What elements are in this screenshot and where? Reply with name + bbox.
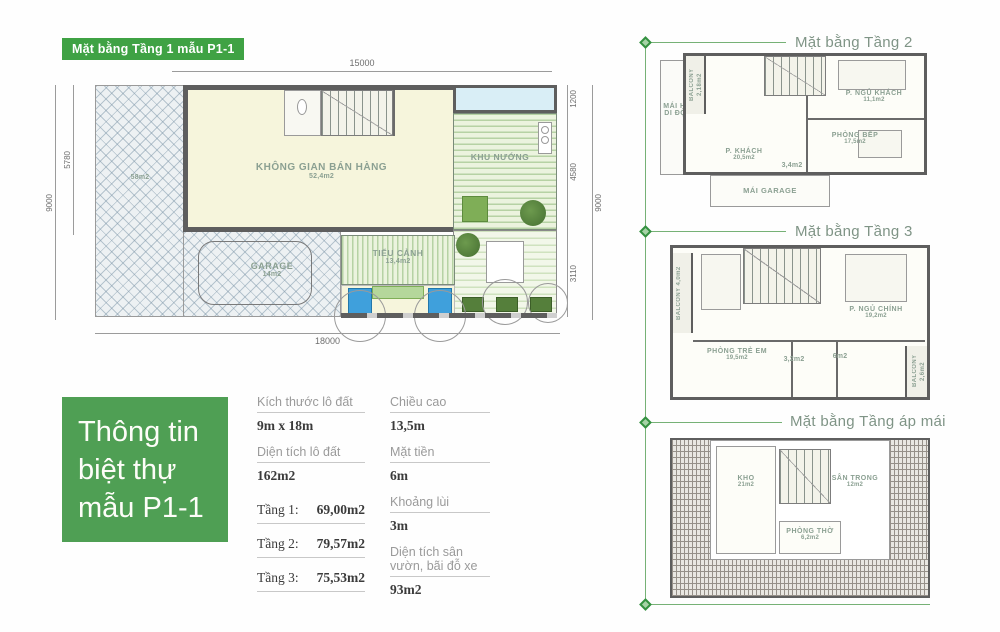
floor3-stairs <box>743 248 821 304</box>
grill-icon <box>538 122 552 154</box>
phong-tre-em-area: 19,5m2 <box>683 355 791 361</box>
spec-label: Diện tích sân vườn, bãi đỗ xe <box>390 545 490 577</box>
spec-value: 69,00m2 <box>317 502 365 518</box>
garage-label: GARAGE 14m2 <box>204 261 340 278</box>
floor3-title: Mặt bằng Tầng 3 <box>795 223 913 240</box>
phong-tre-em-label: PHÒNG TRẺ EM 19,5m2 <box>683 348 791 361</box>
dim-bottom: 18000 <box>95 333 560 346</box>
tree-canopy-icon <box>482 279 528 325</box>
yard-area-label: 58m2 <box>96 174 184 181</box>
planter-icon <box>462 196 488 222</box>
attic-kho-room: KHO 21m2 <box>716 446 776 554</box>
toilet-icon <box>297 99 307 115</box>
tree-icon <box>520 200 546 226</box>
wall-divider <box>808 118 924 120</box>
spec-value: 162m2 <box>257 468 365 484</box>
dim-right-outer: 9000 <box>592 85 603 320</box>
floorplan-page: Mặt bằng Tầng 1 mẫu P1-1 58m2 GARAGE 14m… <box>0 0 1000 632</box>
spec-label: Tầng 3: <box>257 570 299 586</box>
tieu-canh-area: 13,4m2 <box>342 258 454 265</box>
wc-area-label: 3,2m2 <box>777 356 811 363</box>
san-trong-label: SÂN TRONG 12m2 <box>821 475 889 488</box>
connector-hline <box>646 422 782 423</box>
dim-left-inner: 5780 <box>73 85 74 235</box>
spec-row: Tầng 3: 75,53m2 <box>257 563 365 592</box>
dim-top-value: 15000 <box>349 58 374 72</box>
dim-right-mid: 4580 <box>567 113 578 230</box>
spec-value: 93m2 <box>390 582 490 598</box>
bed-icon <box>838 60 906 90</box>
tree-icon <box>456 233 480 257</box>
floor1-garage: GARAGE 14m2 <box>183 230 341 317</box>
floor1-building: KHÔNG GIAN BÁN HÀNG 52,4m2 <box>183 85 460 232</box>
kho-name: KHO <box>717 475 775 482</box>
spec-value: 75,53m2 <box>317 570 365 586</box>
sales-room-label: KHÔNG GIAN BÁN HÀNG 52,4m2 <box>188 162 455 180</box>
spec-label: Kích thước lô đất <box>257 395 365 413</box>
spec-value: 9m x 18m <box>257 418 365 434</box>
bath-area-label: 6m2 <box>825 353 855 360</box>
balcony-area: 2,6m2 <box>920 362 926 381</box>
floor2-balcony: BALCONY 2,18m2 <box>686 56 706 114</box>
roof-hatch <box>672 560 928 596</box>
wall-divider <box>693 340 925 342</box>
p-ngu-chinh-area: 19,2m2 <box>821 313 931 319</box>
phong-bep-area: 17,5m2 <box>810 139 900 145</box>
dim-right-mid-value: 4580 <box>569 163 578 181</box>
spec-col1: Kích thước lô đất 9m x 18m Diện tích lô … <box>257 395 365 597</box>
floor1-garden <box>453 230 557 317</box>
diamond-marker-icon <box>639 36 652 49</box>
attic-phong-tho-room: PHÒNG THỜ 6,2m2 <box>779 521 841 554</box>
kho-label: KHO 21m2 <box>717 475 775 488</box>
kho-area: 21m2 <box>717 482 775 488</box>
dim-left-outer-value: 9000 <box>45 194 54 212</box>
floor2-stairs <box>764 56 826 96</box>
outdoor-table-icon <box>486 241 524 283</box>
attic-inner: KHO 21m2 SÂN TRONG 12m2 PHÒNG THỜ 6,2m2 <box>710 440 890 560</box>
p-khach-area: 20,5m2 <box>694 155 794 161</box>
phong-tho-area: 6,2m2 <box>780 535 840 541</box>
dim-right-low-value: 3110 <box>569 265 578 282</box>
floor1-yard-left: 58m2 <box>95 85 185 317</box>
spec-label: Khoảng lùi <box>390 495 490 513</box>
p-ngu-chinh-label: P. NGỦ CHÍNH 19,2m2 <box>821 306 931 319</box>
floor1-title-badge: Mặt bằng Tầng 1 mẫu P1-1 <box>62 38 244 60</box>
san-trong-area: 12m2 <box>821 482 889 488</box>
info-box-line2: biệt thự <box>78 451 228 489</box>
dim-right-top-value: 1200 <box>569 90 578 108</box>
phong-bep-name: PHÒNG BẾP <box>810 132 900 139</box>
floor3-plan: BALCONY 4,0m2 PHÒNG TRẺ EM 19,5m2 P. NGỦ… <box>655 240 935 405</box>
floor2-plan: MÁI HIÊN DI ĐỘNG BALCONY 2,18m2 P. KHÁ <box>655 50 935 210</box>
p-khach-label: P. KHÁCH 20,5m2 <box>694 148 794 161</box>
dim-top: 15000 <box>172 71 552 72</box>
phong-tho-label: PHÒNG THỜ 6,2m2 <box>780 528 840 541</box>
balcony-label: BALCONY 4,0m2 <box>675 257 683 329</box>
spec-label: Chiều cao <box>390 395 490 413</box>
floor1-plan: 58m2 GARAGE 14m2 KHÔNG GIAN BÁN HÀNG 52,… <box>95 85 560 320</box>
balcony-name: BALCONY <box>676 287 682 319</box>
p-ngu-khach-area: 11,1m2 <box>824 97 924 103</box>
floor3-balcony-right: BALCONY 2,6m2 <box>905 346 927 397</box>
dim-bottom-value: 18000 <box>315 336 340 346</box>
dim-left-outer: 9000 <box>55 85 56 320</box>
phong-tho-name: PHÒNG THỜ <box>780 528 840 535</box>
spec-row: Tầng 1: 69,00m2 <box>257 495 365 524</box>
bed-icon <box>701 254 741 310</box>
connector-hline <box>646 231 786 232</box>
mai-garage-label: MÁI GARAGE <box>711 186 829 195</box>
khu-nuong-label: KHU NƯỚNG <box>454 152 546 162</box>
garage-name: GARAGE <box>204 261 340 271</box>
info-box-line1: Thông tin <box>78 413 228 451</box>
spec-value: 79,57m2 <box>317 536 365 552</box>
balcony-label: BALCONY 2,18m2 <box>688 58 704 112</box>
spec-label: Tầng 1: <box>257 502 299 518</box>
diamond-marker-icon <box>639 225 652 238</box>
p-khach-name: P. KHÁCH <box>694 148 794 155</box>
info-box-line3: mẫu P1-1 <box>78 489 228 527</box>
floor2-title: Mặt bằng Tầng 2 <box>795 34 913 51</box>
spec-value: 3m <box>390 518 490 534</box>
dim-right-top: 1200 <box>567 85 578 113</box>
info-box: Thông tin biệt thự mẫu P1-1 <box>62 397 228 542</box>
floor1-tieu-canh: TIỂU CẢNH 13,4m2 <box>341 235 455 285</box>
balcony-name: BALCONY <box>912 355 918 387</box>
wc-area-label: 3,4m2 <box>774 162 810 169</box>
diamond-marker-icon <box>639 598 652 611</box>
spec-label: Mặt tiền <box>390 445 490 463</box>
phong-bep-label: PHÒNG BẾP 17,5m2 <box>810 132 900 145</box>
floor3-building: BALCONY 4,0m2 PHÒNG TRẺ EM 19,5m2 P. NGỦ… <box>670 245 930 400</box>
bed-icon <box>845 254 907 302</box>
dim-right-outer-value: 9000 <box>594 194 603 212</box>
floor2-building: BALCONY 2,18m2 P. KHÁCH 20,5m2 P. NGỦ KH… <box>683 53 927 175</box>
floor1-blue-room <box>453 85 557 113</box>
balcony-name: BALCONY <box>689 69 695 101</box>
attic-building: KHO 21m2 SÂN TRONG 12m2 PHÒNG THỜ 6,2m2 <box>670 438 930 598</box>
sales-room-area: 52,4m2 <box>188 173 455 180</box>
spec-label: Tầng 2: <box>257 536 299 552</box>
wall-divider <box>791 342 793 397</box>
bottom-wall <box>341 313 557 318</box>
connector-vline <box>645 42 646 604</box>
p-ngu-khach-name: P. NGỦ KHÁCH <box>824 90 924 97</box>
attic-plan: KHO 21m2 SÂN TRONG 12m2 PHÒNG THỜ 6,2m2 <box>655 435 935 605</box>
floor2-mai-garage: MÁI GARAGE <box>710 175 830 207</box>
p-ngu-chinh-name: P. NGỦ CHÍNH <box>821 306 931 313</box>
tieu-canh-label: TIỂU CẢNH 13,4m2 <box>342 248 454 265</box>
floor1-khu-nuong: KHU NƯỚNG <box>453 113 557 230</box>
attic-title: Mặt bằng Tầng áp mái <box>790 413 946 430</box>
spec-col2: Chiều cao 13,5m Mặt tiền 6m Khoảng lùi 3… <box>390 395 490 609</box>
spec-value: 13,5m <box>390 418 490 434</box>
spec-label: Diện tích lô đất <box>257 445 365 463</box>
planter-strip <box>372 286 424 299</box>
sales-room-name: KHÔNG GIAN BÁN HÀNG <box>188 162 455 173</box>
floor1-wc <box>284 90 321 136</box>
tieu-canh-name: TIỂU CẢNH <box>342 248 454 258</box>
diamond-marker-icon <box>639 416 652 429</box>
floor3-balcony-left: BALCONY 4,0m2 <box>673 253 693 333</box>
spec-value: 6m <box>390 468 490 484</box>
connector-hline <box>646 42 786 43</box>
garage-area: 14m2 <box>204 271 340 278</box>
spec-row: Tầng 2: 79,57m2 <box>257 529 365 558</box>
wall-divider <box>836 342 838 397</box>
phong-tre-em-name: PHÒNG TRẺ EM <box>683 348 791 355</box>
balcony-label: BALCONY 2,6m2 <box>911 347 927 395</box>
dim-left-inner-value: 5780 <box>63 151 72 169</box>
balcony-area: 4,0m2 <box>676 266 682 285</box>
wall-divider <box>806 96 808 172</box>
dim-right-low: 3110 <box>567 230 578 317</box>
balcony-area: 2,18m2 <box>697 74 703 97</box>
san-trong-name: SÂN TRONG <box>821 475 889 482</box>
floor1-stairs <box>321 90 393 136</box>
p-ngu-khach-label: P. NGỦ KHÁCH 11,1m2 <box>824 90 924 103</box>
wall-divider <box>393 90 395 136</box>
